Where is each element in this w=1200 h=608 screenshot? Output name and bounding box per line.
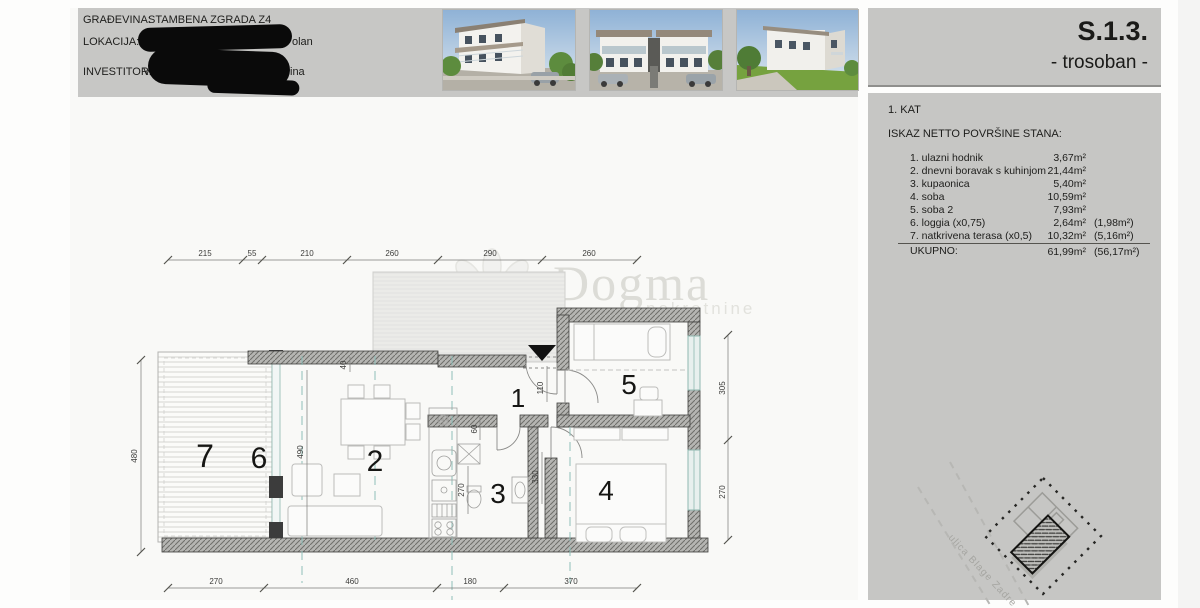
location-label: LOKACIJA:: [83, 36, 139, 48]
table-row: 4. soba10,59m²: [888, 191, 1160, 204]
floor-label: 1. KAT: [888, 104, 921, 116]
building-render-photo-3: [737, 10, 858, 90]
area-heading: ISKAZ NETTO POVRŠINE STANA:: [888, 128, 1062, 140]
area-table: 1. ulazni hodnik3,67m² 2. dnevni boravak…: [888, 152, 1160, 259]
unit-code: S.1.3.: [900, 16, 1148, 47]
table-row: 3. kupaonica5,40m²: [888, 178, 1160, 191]
location-fragment: olan: [292, 36, 313, 48]
building-render-rear-view: [737, 10, 858, 90]
investor-fragment: ina: [290, 66, 305, 78]
table-row: 6. loggia (x0,75)2,64m²(1,98m²): [888, 217, 1160, 230]
document-page: GRAĐEVINA: STAMBENA ZGRADA Z4 LOKACIJA: …: [0, 0, 1200, 608]
building-render-photo-2: [590, 10, 722, 90]
building-render-front-view: [590, 10, 722, 90]
table-row: 1. ulazni hodnik3,67m²: [888, 152, 1160, 165]
building-render-corner-view: [443, 10, 575, 90]
table-total-row: UKUPNO:61,99m²(56,17m²): [898, 243, 1150, 259]
table-row: 7. natkrivena terasa (x0,5)10,32m²(5,16m…: [888, 230, 1160, 243]
building-label: GRAĐEVINA:: [83, 14, 151, 26]
table-row: 2. dnevni boravak s kuhinjom21,44m²: [888, 165, 1160, 178]
investor-label: INVESTITOR:: [83, 66, 152, 78]
building-render-photo-1: [443, 10, 575, 90]
redaction-blob-investor: [147, 48, 290, 89]
page-right-margin: [1178, 0, 1200, 608]
unit-type: - trosoban -: [900, 52, 1148, 74]
table-row: 5. soba 27,93m²: [888, 204, 1160, 217]
